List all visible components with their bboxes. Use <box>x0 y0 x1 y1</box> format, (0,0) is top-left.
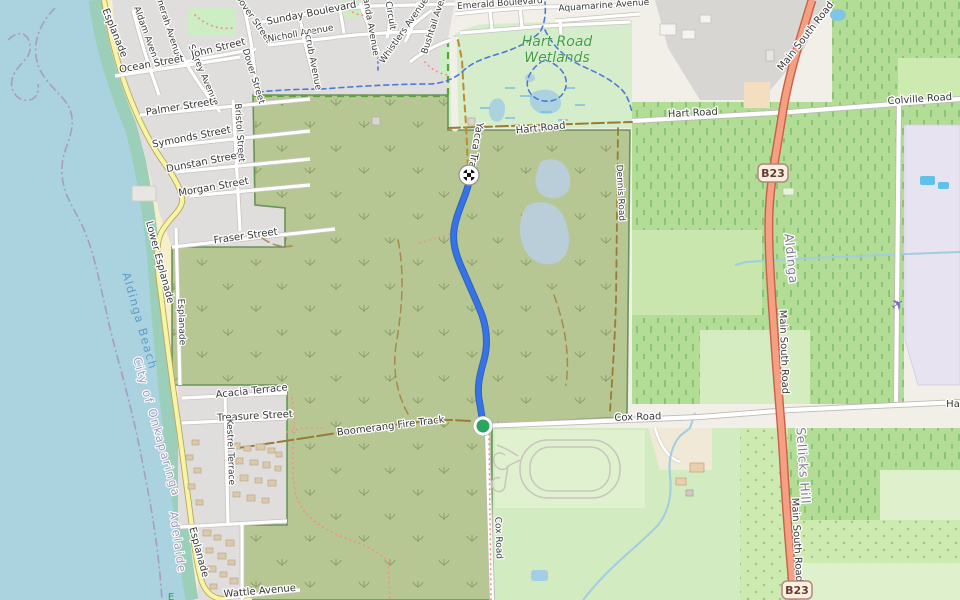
b23-badge: B23 <box>758 164 788 182</box>
road-label: Cox Road <box>614 411 661 424</box>
road-label: Ha <box>946 399 960 410</box>
pond <box>920 176 935 185</box>
b23-badge: B23 <box>782 581 812 599</box>
partial-label: E <box>168 592 174 600</box>
aerodrome-area <box>905 125 960 385</box>
start-marker[interactable] <box>474 417 493 436</box>
checkered-flag-icon <box>463 169 475 181</box>
map-canvas[interactable]: Esplanade Aldam Avenue nnerah Avenue Sto… <box>0 0 960 600</box>
b23-badge-text: B23 <box>761 167 785 180</box>
road-label: Cox Road <box>492 517 503 560</box>
wetlands-label: Hart Road <box>522 34 593 50</box>
street-label: Esplanade <box>175 298 187 345</box>
pond <box>938 182 949 189</box>
map-view[interactable]: Esplanade Aldam Avenue nnerah Avenue Sto… <box>0 0 960 600</box>
pond <box>531 570 548 581</box>
wetlands-label: Wetlands <box>524 50 589 66</box>
b23-badge-text: B23 <box>785 584 809 597</box>
finish-marker[interactable] <box>459 165 479 185</box>
park-patch <box>188 8 236 36</box>
start-dot-icon <box>475 418 491 434</box>
